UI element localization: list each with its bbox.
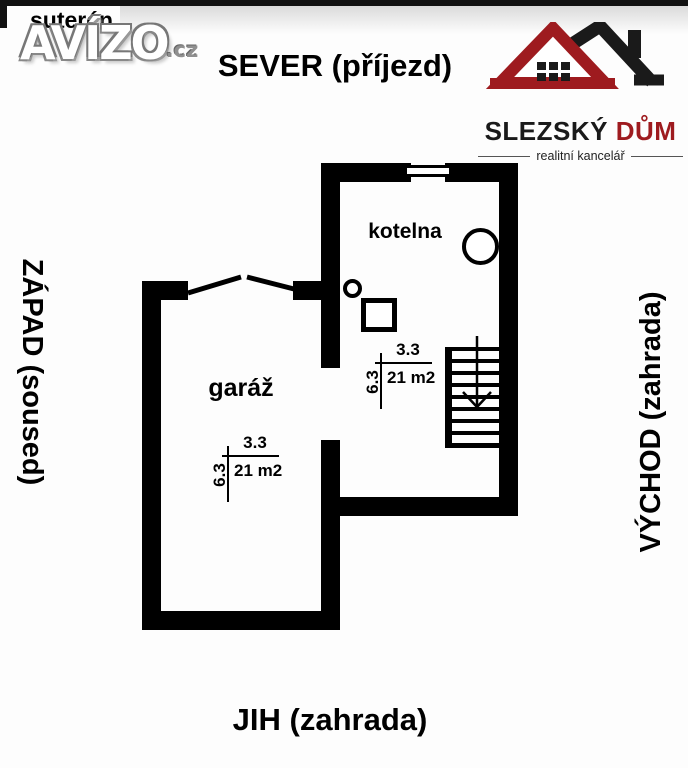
garaz-right-wall	[321, 440, 340, 630]
agency-logo: SLEZSKÝ DŮM realitní kancelář	[478, 22, 683, 163]
tagline-rule-right	[631, 156, 683, 157]
agency-name-accent: DŮM	[608, 116, 676, 146]
garaz-width-value: 3.3	[231, 433, 279, 453]
window-icon	[407, 165, 449, 177]
kotelna-bottom-wall	[340, 497, 518, 516]
house-roofs-icon	[478, 22, 683, 114]
garage-door-icon	[188, 277, 294, 293]
dimension-hline	[222, 455, 279, 457]
kotelna-depth-value: 6.3	[363, 363, 381, 401]
floor-drain-circle-icon	[343, 279, 362, 298]
garaz-left-wall	[142, 281, 161, 630]
agency-tagline-text: realitní kancelář	[536, 149, 624, 163]
floorplan-image: suterén AVÍZO.cz SEVER (příjezd) JIH (za…	[0, 0, 688, 768]
room-label-kotelna: kotelna	[350, 220, 460, 244]
garaz-area-value: 21 m2	[234, 461, 282, 481]
garaz-depth-value: 6.3	[210, 456, 228, 494]
kotelna-area-value: 21 m2	[387, 368, 435, 388]
agency-tagline: realitní kancelář	[478, 149, 683, 163]
compass-north-label: SEVER (příjezd)	[175, 48, 495, 84]
top-border-bar	[0, 0, 688, 6]
kotelna-width-value: 3.3	[384, 340, 432, 360]
agency-name-primary: SLEZSKÝ	[485, 116, 608, 146]
avizo-logo-text: AVÍZO	[20, 16, 168, 70]
top-left-corner-mark	[0, 0, 7, 28]
avizo-watermark: AVÍZO.cz	[20, 16, 200, 70]
kotelna-left-wall	[321, 163, 340, 368]
tagline-rule-left	[478, 156, 530, 157]
garaz-top-stub-right	[293, 281, 340, 300]
compass-east-label: VÝCHOD (zahrada)	[635, 252, 675, 592]
garaz-bottom-wall	[142, 611, 340, 630]
boiler-circle-icon	[462, 228, 499, 265]
staircase-icon	[445, 347, 502, 448]
agency-name: SLEZSKÝ DŮM	[478, 116, 683, 147]
equipment-square-icon	[361, 298, 397, 332]
dimension-marker-garaz: 3.3 6.3 21 m2	[212, 435, 290, 509]
compass-west-label: ZÁPAD (soused)	[8, 222, 48, 522]
room-label-garaz: garáž	[196, 374, 286, 403]
dimension-marker-kotelna: 3.3 6.3 21 m2	[365, 342, 443, 416]
east-outer-wall	[499, 163, 518, 516]
compass-south-label: JIH (zahrada)	[170, 702, 490, 738]
dimension-hline	[375, 362, 432, 364]
garaz-top-stub-left	[142, 281, 188, 300]
avizo-tld-text: .cz	[166, 38, 199, 62]
